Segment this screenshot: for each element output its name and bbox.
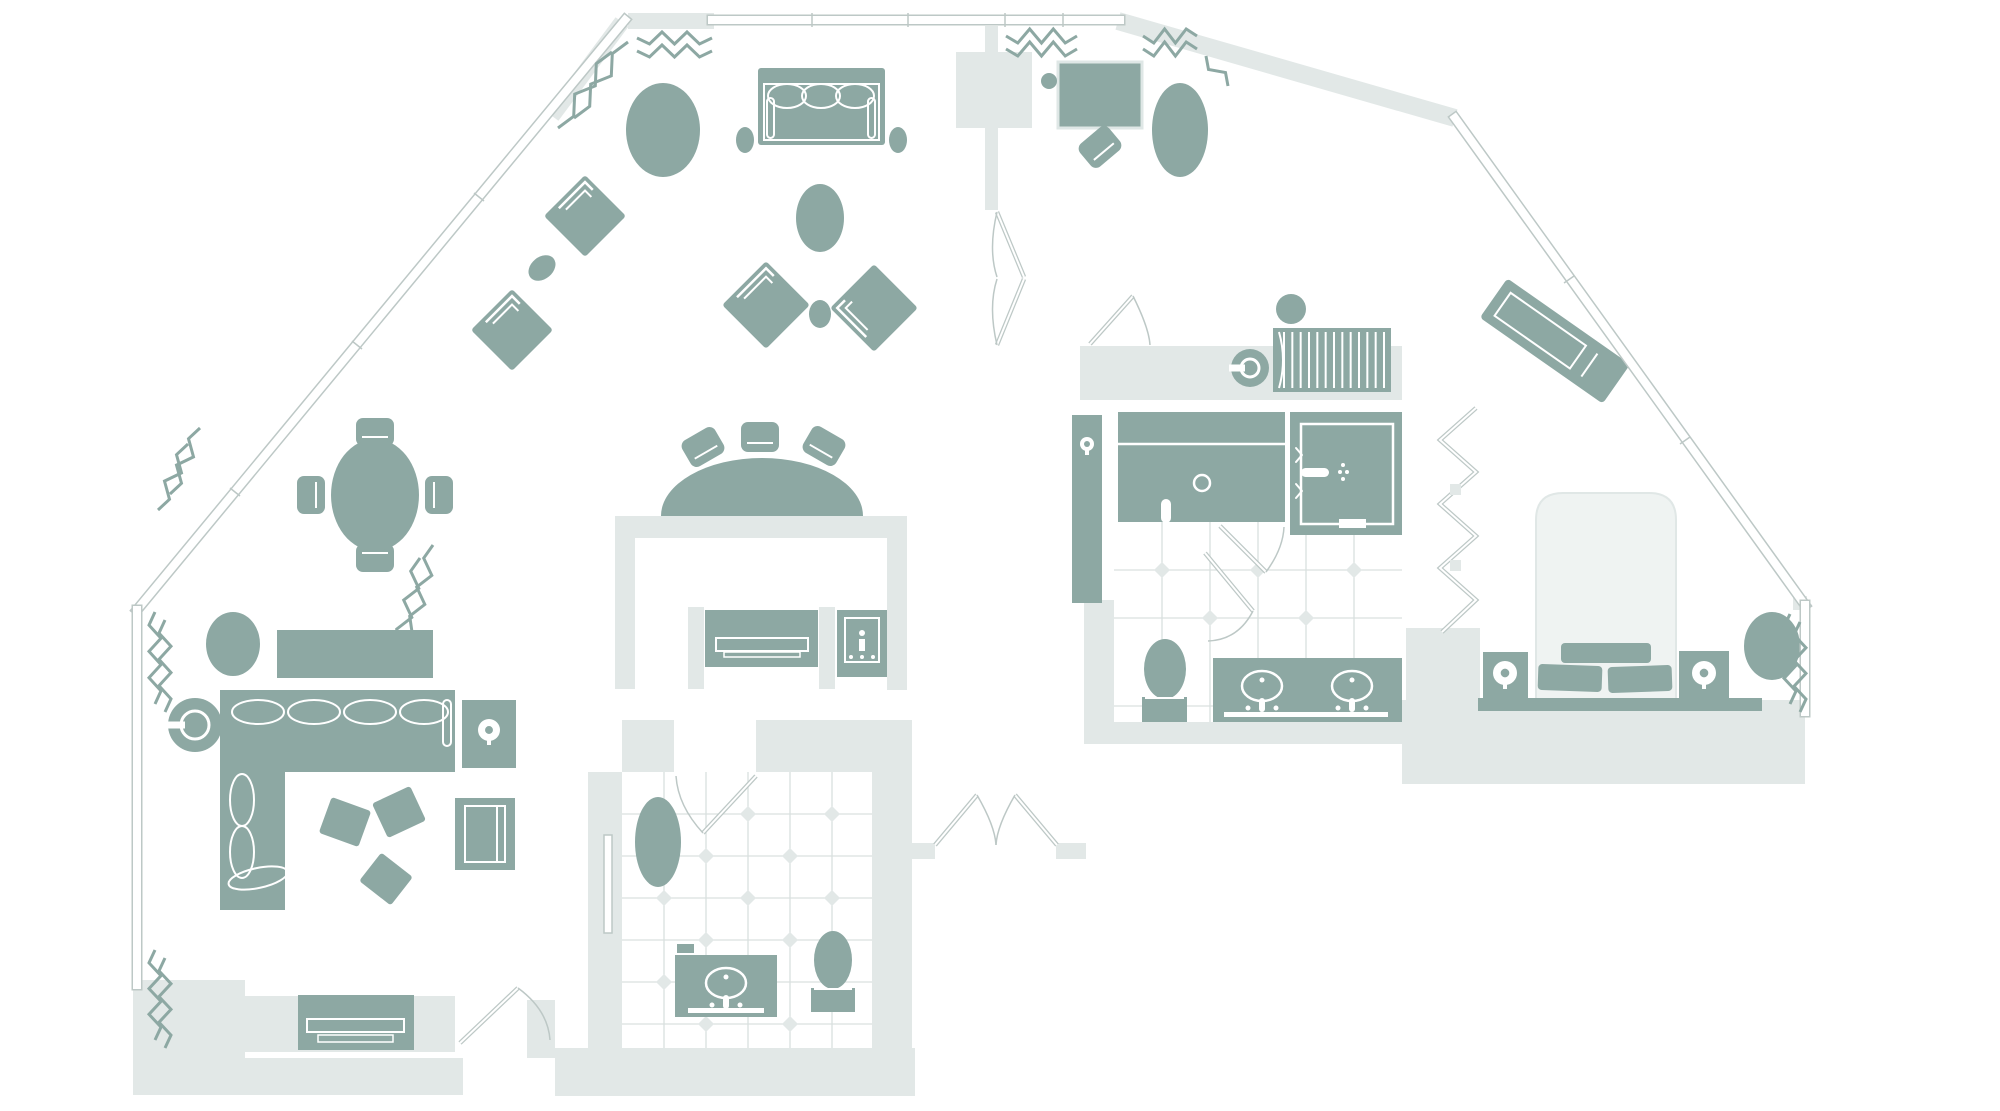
faucet-handle [710, 1003, 715, 1008]
sink-drain [1350, 678, 1355, 683]
sink-faucet [1349, 698, 1355, 712]
bath-west-wall [1084, 600, 1114, 722]
bath-tile-floor [1114, 522, 1402, 658]
desk-chair [1076, 123, 1124, 170]
armchair-body [471, 289, 553, 371]
door-arc [993, 212, 998, 277]
faucet-handle [1274, 706, 1279, 711]
faucet-handle [1246, 706, 1251, 711]
towel-rail [1224, 712, 1388, 717]
shower-spray-dot [1338, 470, 1342, 474]
bar-post-right [819, 607, 835, 689]
desk [1058, 62, 1142, 128]
dining-chair-body [425, 476, 453, 514]
toilet-tank [811, 988, 855, 1012]
cabinet-lamp-icon-stem [1085, 448, 1089, 455]
bar-stool-body [679, 425, 727, 470]
armchair-body [830, 264, 918, 352]
door-leaf [1090, 296, 1133, 344]
bar-console [705, 610, 818, 667]
curved-settee [661, 458, 863, 516]
shower-threshold [1339, 519, 1366, 528]
bathtub [1118, 412, 1285, 522]
minibar-dot [860, 655, 864, 659]
curtain-zigzag [1006, 29, 1077, 43]
bar-stool-body [800, 424, 848, 469]
bed-pillow [1608, 665, 1673, 693]
table-lamp-icon-bulb [1501, 669, 1510, 678]
table-lamp-icon-bulb [485, 726, 493, 734]
table-lamp-icon-stem [1702, 682, 1706, 689]
towel-rail [688, 1008, 764, 1013]
door-leaf [997, 212, 1024, 277]
bar-counter-top [615, 516, 907, 538]
divider-wall [985, 26, 998, 210]
throw-pillow [372, 786, 426, 838]
entry-door-arc [977, 795, 996, 845]
toilet [811, 931, 855, 1012]
door-arc [1133, 296, 1150, 345]
bed-pillow [1538, 664, 1603, 692]
bar-stool [800, 424, 848, 469]
armchair [544, 175, 626, 257]
side-table-oval [889, 127, 907, 153]
chaise-lounge [1480, 278, 1630, 403]
armchair-body [722, 261, 810, 349]
table-lamp-icon-stem [1503, 682, 1507, 689]
end-table [462, 700, 516, 768]
desk-accent-circle [1041, 73, 1057, 89]
powder-slab [555, 1048, 915, 1096]
armchair [471, 289, 553, 371]
door-leaf-inner [1090, 296, 1133, 344]
bar-counter-left [615, 538, 635, 689]
tall-cabinet [1072, 415, 1102, 603]
curtain-zigzag [410, 545, 433, 632]
shower-spray-dot [1341, 463, 1345, 467]
throw-pillow [359, 853, 413, 906]
bedroom-floor-band [1460, 700, 1805, 784]
bath-south-wall [1084, 720, 1402, 744]
bifold-closet-door [1440, 408, 1476, 632]
powder-wall-top-left [622, 720, 674, 772]
throw-pillow [372, 786, 426, 838]
bar-post-left [688, 607, 704, 689]
double-vanity [1213, 658, 1402, 722]
side-table-oval [206, 612, 260, 676]
shower-spray-dot [1341, 477, 1345, 481]
bar-stool-body [741, 422, 779, 452]
nightstand [1679, 651, 1729, 698]
closet-hanging-rod [1273, 328, 1391, 392]
media-console [298, 995, 414, 1050]
dining-table [331, 439, 419, 551]
bifold-track-block [1450, 560, 1461, 571]
minibar-dot [849, 655, 853, 659]
curtain-zigzag [170, 428, 200, 494]
entry-door-leaf [1015, 795, 1057, 845]
round-side-table [166, 698, 222, 752]
powder-wall-top-right [756, 720, 872, 772]
dining-chair-body [297, 476, 325, 514]
lounge-chair-oval [626, 83, 700, 177]
accent-oval [523, 250, 560, 286]
round-side-table-notch [166, 722, 185, 729]
minibar-bottle [859, 639, 865, 651]
chaise-lounge [1480, 278, 1630, 403]
sink-drain [1260, 678, 1265, 683]
faucet-handle [738, 1003, 743, 1008]
powder-vanity [675, 955, 777, 1017]
hall-bridge-wall [1402, 700, 1462, 784]
entry-bottom-band [133, 1058, 463, 1095]
console-table [277, 630, 433, 678]
faucet-handle [1336, 706, 1341, 711]
coffee-table-oval [796, 184, 844, 252]
minibar-dot [871, 655, 875, 659]
headboard [1478, 698, 1762, 711]
table-lamp-icon-stem [487, 738, 491, 745]
faucet-handle [1364, 706, 1369, 711]
bathtub [1118, 412, 1285, 523]
side-table-oval [736, 127, 754, 153]
curtain-zigzag [637, 32, 712, 44]
towel-bar [604, 835, 612, 933]
armchair-square [455, 798, 515, 870]
dining-chair [425, 476, 453, 514]
minibar [837, 610, 887, 677]
entry-stub-right [1056, 843, 1086, 859]
entry-door-leaf-inner [935, 795, 977, 845]
bifold-track-block [1450, 484, 1461, 495]
door-leaf-inner [460, 988, 518, 1043]
door-leaf [997, 279, 1024, 345]
tub-faucet [1161, 499, 1171, 523]
lounge-chair-oval [1152, 83, 1208, 177]
sink-faucet [723, 995, 729, 1009]
door-leaf-inner [997, 212, 1024, 277]
floor-plan-canvas [0, 0, 2000, 1111]
sink-drain [724, 975, 729, 980]
entry-door-arc [996, 795, 1015, 845]
bed-pillow [1538, 664, 1603, 692]
throw-pillow [319, 797, 371, 847]
dining-chair [297, 476, 325, 514]
minibar-knob [859, 630, 865, 636]
soaking-tub [635, 797, 681, 887]
toilet [1142, 639, 1187, 722]
shower-head-icon [1301, 468, 1329, 477]
armchair-body [544, 175, 626, 257]
powder-wall-right [872, 720, 912, 1052]
soap-dish [677, 944, 694, 953]
stool-circle [1276, 294, 1306, 324]
armchair [722, 261, 810, 349]
table-lamp-icon-bulb [1700, 669, 1709, 678]
curtain-zigzag [637, 45, 712, 57]
throw-pillow [319, 797, 371, 847]
bar-stool [679, 425, 727, 470]
bar-counter-right [887, 538, 907, 690]
sofa [758, 68, 885, 145]
door-leaf-inner [997, 279, 1024, 345]
shower-spray-dot [1345, 470, 1349, 474]
desk-chair-body [1076, 123, 1124, 170]
bar-stool [741, 422, 779, 452]
cabinet-lamp-icon-bulb [1084, 441, 1090, 447]
entry-door-leaf [935, 795, 977, 845]
bed-pillow [1561, 643, 1651, 663]
laundry-basket-notch [1229, 365, 1245, 372]
accent-oval [523, 250, 560, 286]
toilet-bowl [1144, 639, 1186, 699]
toilet-bowl [814, 931, 852, 989]
throw-pillow [359, 853, 413, 906]
shower [1290, 412, 1402, 535]
curtain-zigzag [158, 444, 188, 510]
closet-hanging-rod [1273, 328, 1391, 392]
floor-plan-svg [0, 0, 2000, 1111]
door-arc [993, 279, 998, 345]
accent-oval [809, 300, 831, 328]
door-leaf [460, 988, 518, 1043]
entry-door-leaf-inner [1015, 795, 1057, 845]
nightstand [1483, 652, 1528, 698]
sink-faucet [1259, 698, 1265, 712]
bifold-closet-door-inner [1440, 408, 1476, 632]
connector-wall [527, 1000, 555, 1058]
bed-pillow [1608, 665, 1673, 693]
armchair [830, 264, 918, 352]
toilet-tank [1142, 697, 1187, 722]
